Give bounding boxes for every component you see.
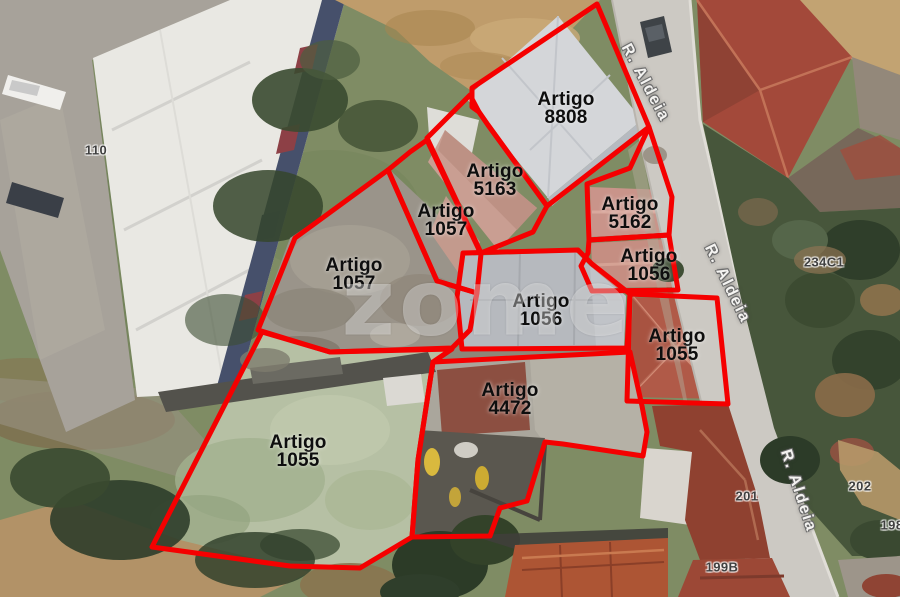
aerial-imagery bbox=[0, 0, 900, 597]
map-viewport[interactable]: Artigo8808Artigo5163Artigo1057Artigo1057… bbox=[0, 0, 900, 597]
